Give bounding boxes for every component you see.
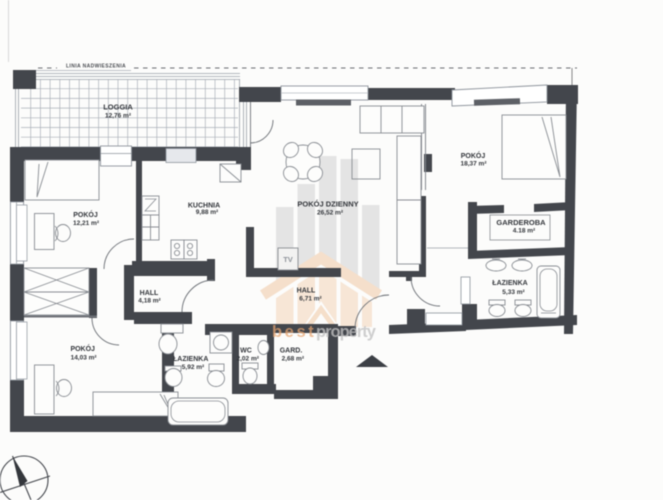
svg-text:12,21 m²: 12,21 m² [73,220,100,227]
svg-text:property: property [316,323,377,341]
svg-text:best: best [272,323,316,341]
svg-text:POKÓJ: POKÓJ [70,344,95,353]
svg-text:HALL: HALL [140,290,159,297]
svg-text:26,52 m²: 26,52 m² [317,210,344,217]
svg-text:18,37 m²: 18,37 m² [460,161,487,168]
svg-text:POKÓJ: POKÓJ [461,151,486,160]
svg-text:LINIA NADWIESZENIA: LINIA NADWIESZENIA [66,64,126,70]
svg-text:5,92 m²: 5,92 m² [182,364,205,371]
svg-text:ŁAZIENKA: ŁAZIENKA [173,356,208,363]
svg-text:GARDEROBA: GARDEROBA [496,218,546,227]
svg-text:ŁAZIENKA: ŁAZIENKA [492,280,527,287]
svg-text:HALL: HALL [297,288,316,295]
svg-text:POKÓJ: POKÓJ [73,210,98,219]
svg-text:14,03 m²: 14,03 m² [71,355,98,362]
svg-text:4,18 m²: 4,18 m² [138,298,161,305]
svg-text:6,71 m²: 6,71 m² [299,296,322,303]
svg-text:9,88 m²: 9,88 m² [196,209,219,216]
svg-text:2,02 m²: 2,02 m² [236,356,259,363]
svg-text:4.18 m²: 4.18 m² [513,228,536,235]
svg-text:GARD.: GARD. [280,348,303,355]
svg-text:POKÓJ DZIENNY: POKÓJ DZIENNY [297,200,358,209]
svg-text:12,76 m²: 12,76 m² [105,113,132,120]
svg-text:LOGGIA: LOGGIA [103,103,133,112]
svg-text:TV: TV [283,255,293,264]
svg-text:2,68 m²: 2,68 m² [282,356,305,363]
svg-text:5,33 m²: 5,33 m² [502,289,525,296]
svg-text:WC: WC [240,348,252,355]
